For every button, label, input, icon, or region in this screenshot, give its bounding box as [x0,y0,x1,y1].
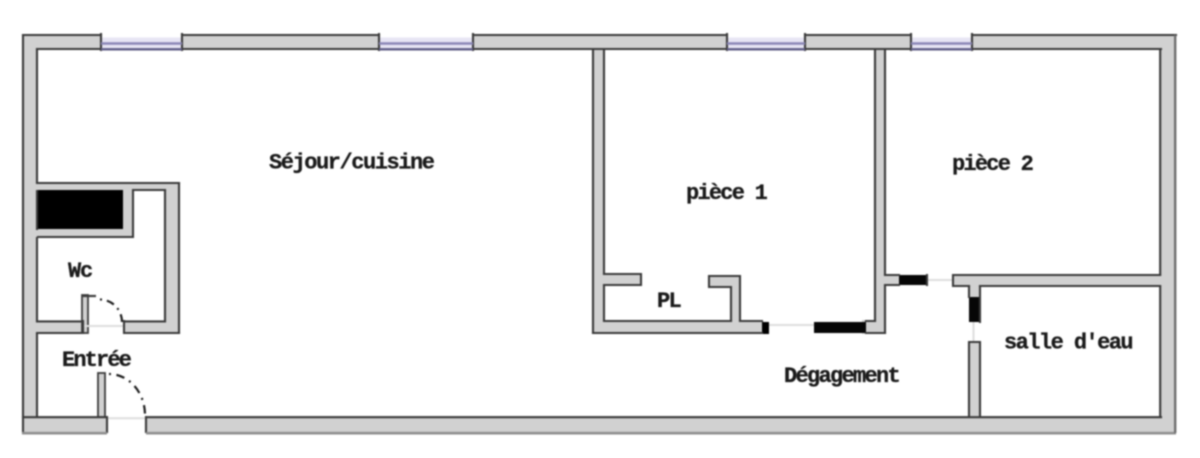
svg-text:Wc: Wc [68,259,92,284]
svg-text:Séjour/cuisine: Séjour/cuisine [269,150,435,175]
svg-text:Dégagement: Dégagement [784,364,900,389]
svg-text:salle d'eau: salle d'eau [1004,331,1132,356]
svg-text:PL: PL [657,289,682,314]
svg-text:Entrée: Entrée [62,348,132,373]
svg-text:pièce 1: pièce 1 [686,181,768,206]
svg-text:pièce 2: pièce 2 [952,152,1033,177]
